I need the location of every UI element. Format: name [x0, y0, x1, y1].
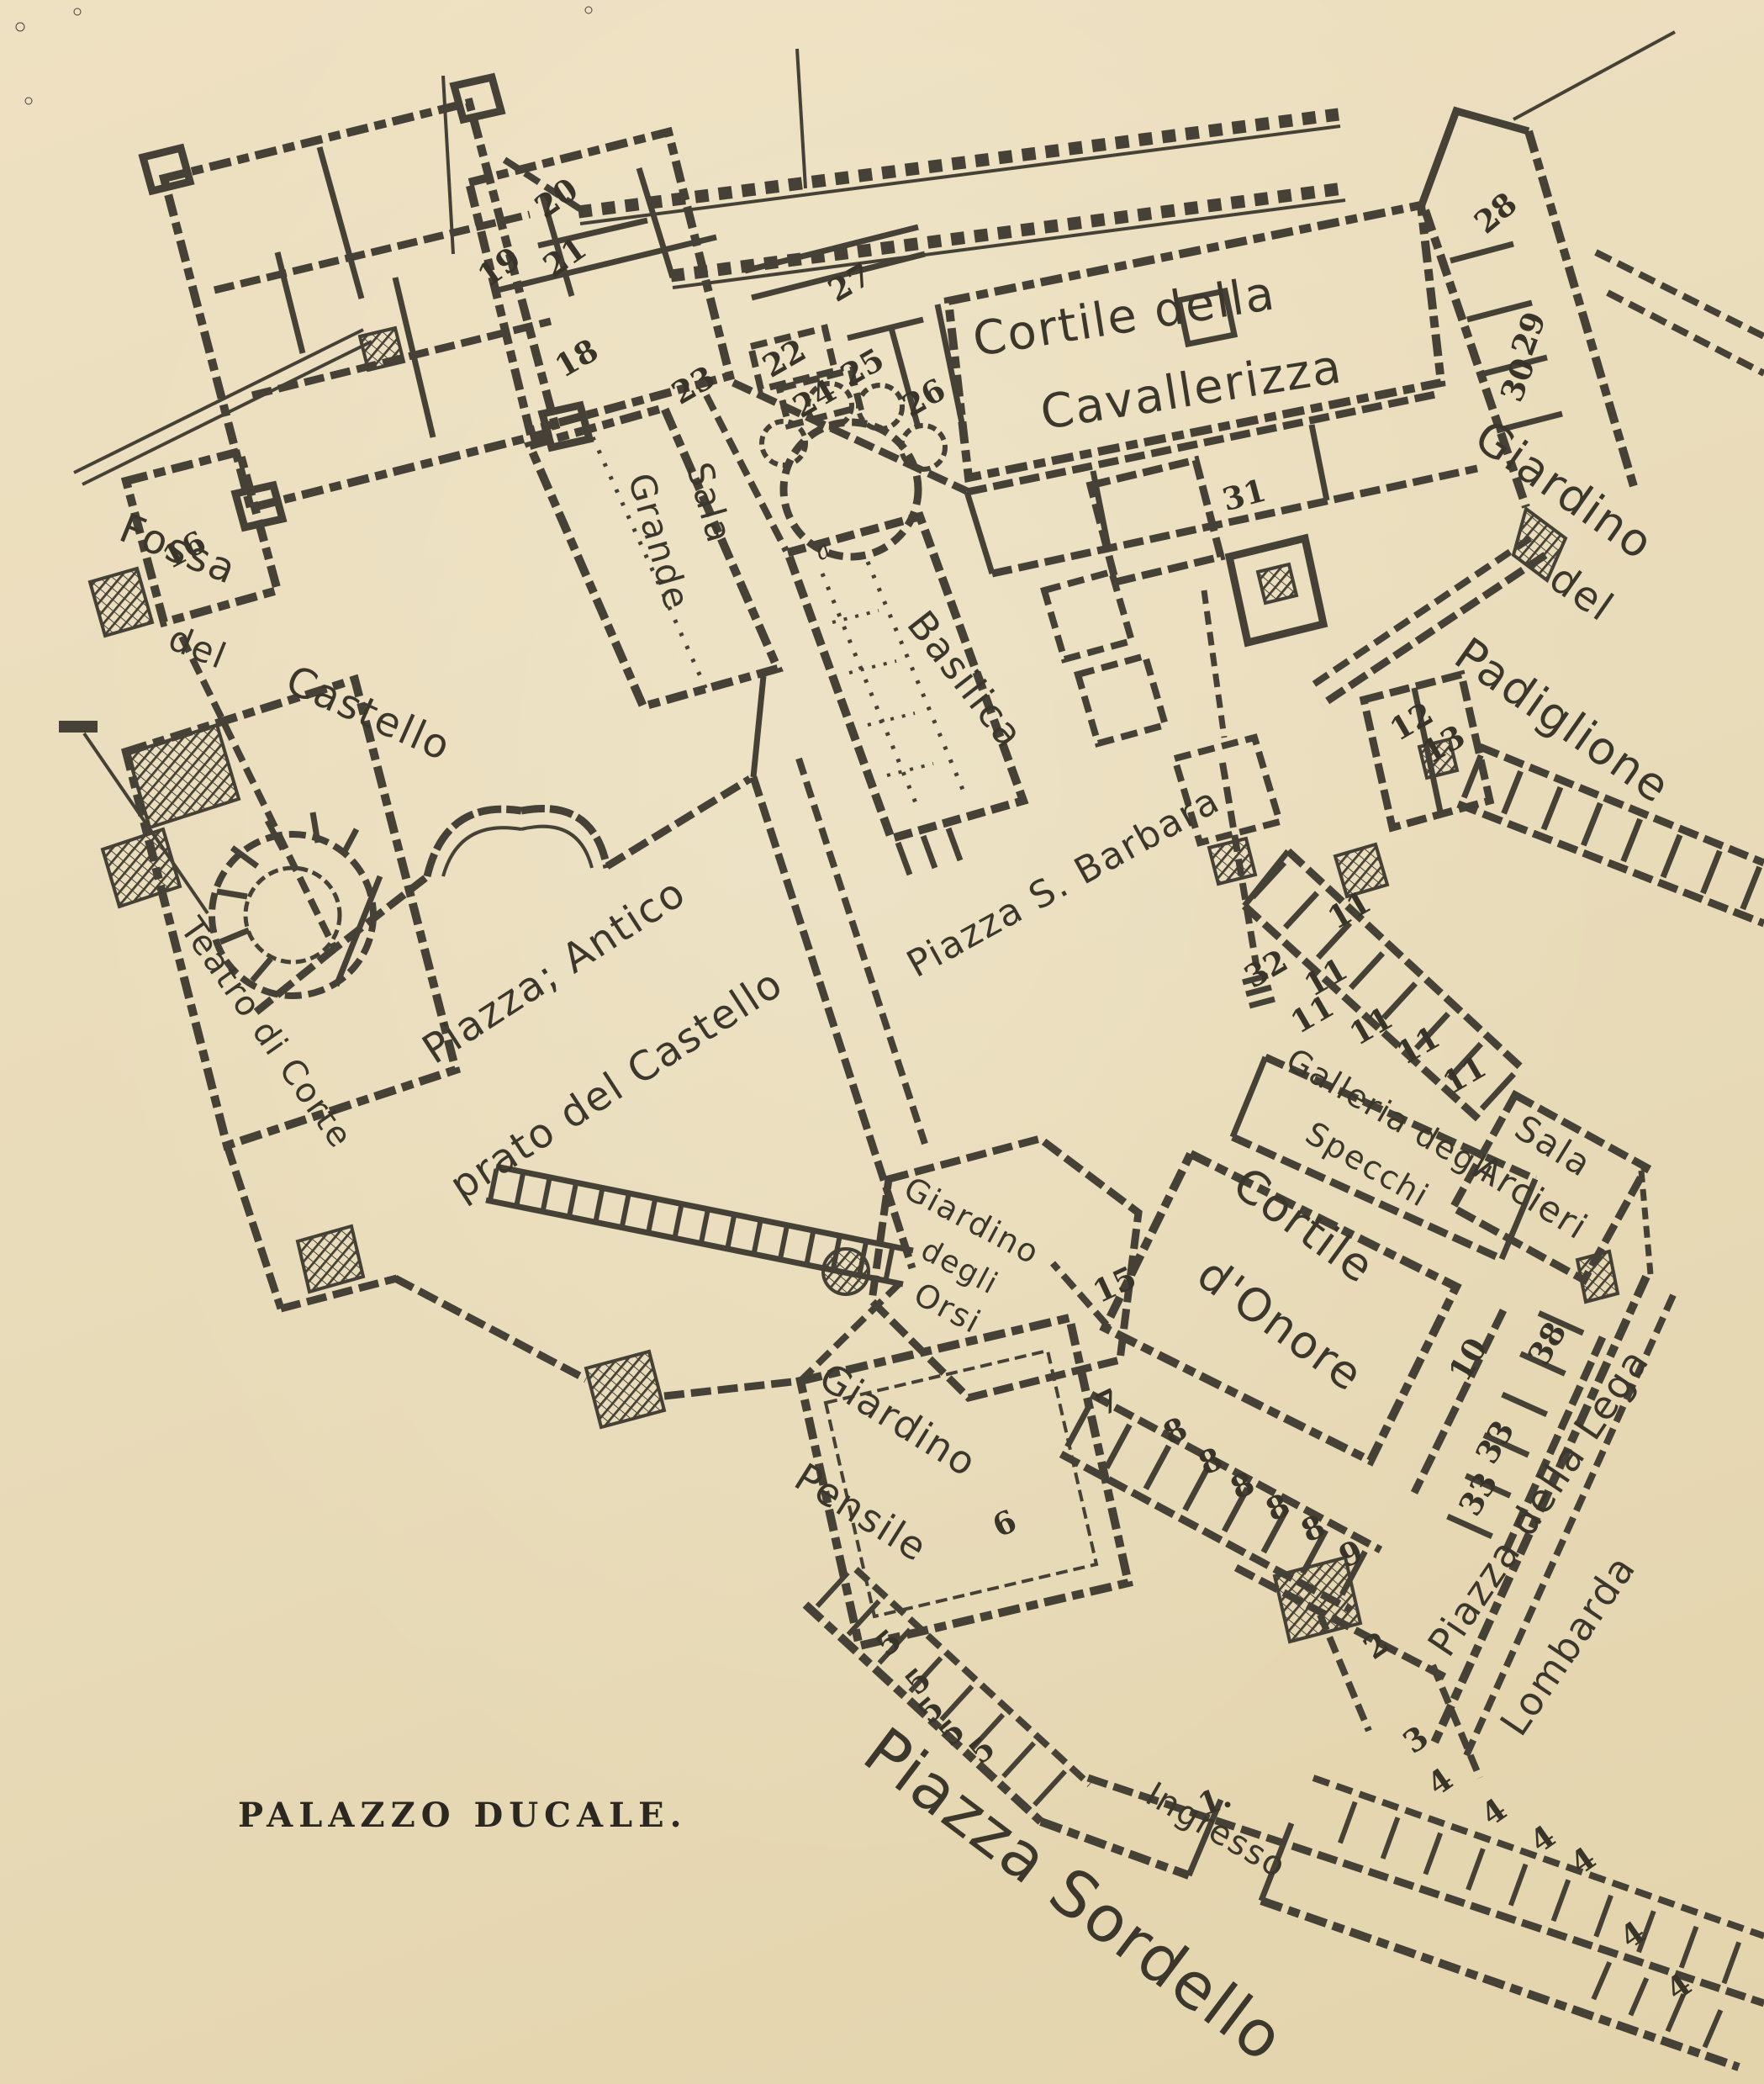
label-sala-grande-1: Sala [679, 458, 741, 548]
paper-specks [16, 7, 592, 104]
room-number-6: 6 [987, 1502, 1022, 1545]
label-giardino-padiglione-3: Padiglione [1445, 627, 1681, 814]
label-basilica: Basilica [898, 602, 1033, 757]
room-number-33: 33 [1451, 1466, 1505, 1522]
room-number-28: 28 [1467, 185, 1524, 241]
room-number-5: 5 [869, 1621, 909, 1663]
room-number-3: 3 [1396, 1718, 1434, 1761]
palazzo-ducale-plan: 1619202118232224252627282930311213111111… [0, 0, 1764, 2084]
room-number-32: 32 [1238, 942, 1294, 996]
room-number-29: 29 [1503, 307, 1553, 360]
room-number-8: 8 [1260, 1486, 1296, 1529]
page-caption: PALAZZO DUCALE. [238, 1796, 688, 1835]
scanned-book-page: 1619202118232224252627282930311213111111… [0, 0, 1764, 2084]
room-number-8: 8 [1225, 1464, 1260, 1507]
label-giardino-pensile-1: Giardino [811, 1354, 985, 1486]
room-number-11: 11 [1284, 987, 1340, 1041]
room-number-18: 18 [548, 331, 605, 385]
room-number-4: 4 [1474, 1790, 1513, 1833]
label-giardino-padiglione-1: Giardino [1466, 410, 1664, 570]
basilica [762, 383, 1224, 875]
label-fossa-2: del [163, 617, 233, 678]
label-piazza-s-barbara: Piazza S. Barbara [900, 779, 1227, 986]
label-cortile-cavallerizza-1: Cortile della [969, 266, 1280, 368]
room-number-8: 8 [1296, 1507, 1331, 1550]
room-number-33: 33 [1468, 1414, 1522, 1470]
room-number-4: 4 [1420, 1760, 1459, 1803]
label-giardino-pensile-2: Pensile [787, 1454, 936, 1571]
label-fossa-3: Castello [279, 656, 458, 770]
room-number-11: 11 [1436, 1048, 1492, 1102]
